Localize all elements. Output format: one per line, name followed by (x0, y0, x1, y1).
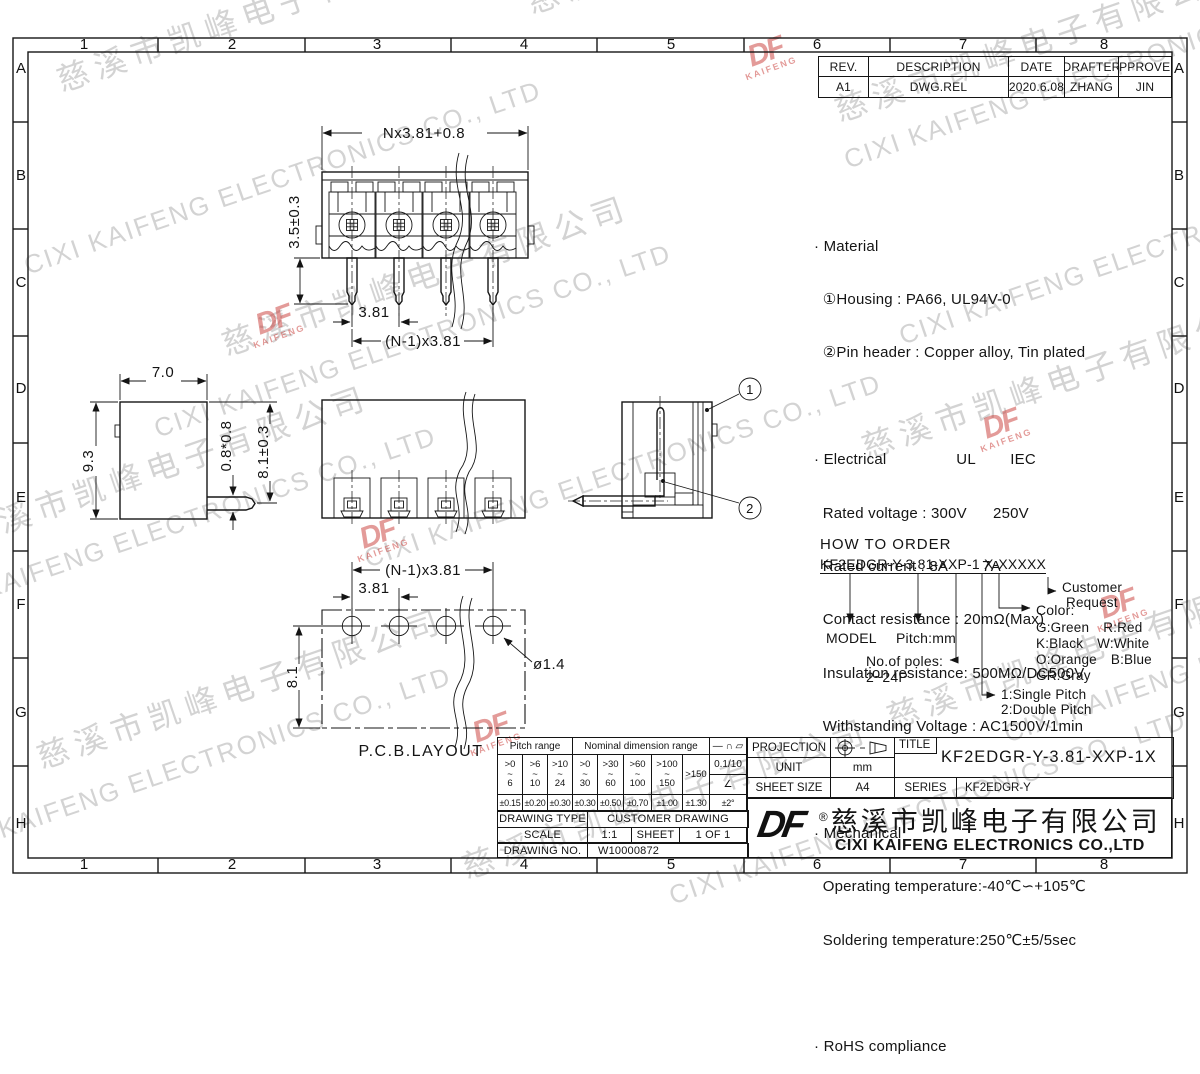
zone-col-label: 3 (366, 36, 388, 53)
note-line: ②Pin header : Copper alloy, Tin plated (814, 344, 1184, 362)
tolerance-value: ±1.00 (652, 795, 683, 811)
zone-col-label: 8 (1093, 36, 1115, 53)
note-line: · Electrical UL IEC (814, 451, 1184, 469)
drawing-no-value: W10000872 (588, 844, 748, 857)
series-value: KF2EDGR-Y (957, 778, 1173, 798)
note-line: Rated voltage : 300V 250V (814, 505, 1184, 523)
tolerance-range: >0 ~ 30 (573, 755, 598, 795)
tolerance-table: Pitch range Nominal dimension range — ∩ … (497, 737, 747, 812)
order-poles-value: 2~24P (866, 669, 908, 685)
zone-row-label: A (10, 60, 32, 77)
scale-value: 1:1 (588, 828, 632, 842)
zone-row-label: F (10, 596, 32, 613)
note-line: · RoHS compliance (814, 1038, 1184, 1056)
order-color-row: G:GreenR:Red (1036, 620, 1142, 635)
zone-col-label: 1 (73, 36, 95, 53)
order-color-option: G:Green (1036, 620, 1089, 635)
kaifeng-logo-watermark: DF KAIFENG (244, 300, 307, 351)
note-line: Soldering temperature:250℃±5/5sec (814, 932, 1184, 950)
title-block: PROJECTION TITLE KF2EDGR-Y-3.81-XXP-1X U… (747, 737, 1174, 799)
zone-col-label: 1 (73, 856, 95, 873)
zone-col-label: 5 (660, 856, 682, 873)
company-name-cn: ®慈溪市凯峰电子有限公司 (809, 800, 1171, 839)
order-color-option: R:Red (1103, 620, 1142, 635)
revision-value-description: DWG.REL (869, 77, 1009, 97)
scale-label: SCALE (498, 828, 588, 842)
sheet-label: SHEET (632, 828, 680, 842)
tolerance-angle-value: ±2° (710, 795, 746, 811)
zone-col-label: 2 (221, 856, 243, 873)
order-model-label: MODEL (826, 630, 877, 646)
sheet-size-label: SHEET SIZE (748, 778, 831, 798)
revision-value-approver: JIN (1119, 77, 1171, 97)
zone-row-label: D (10, 380, 32, 397)
order-code: KF2EDGR-Y-3.81-XXP-1 X-XXXXX (820, 556, 1046, 574)
order-color-option: K:Black (1036, 636, 1083, 651)
note-line: Operating temperature:-40℃∽+105℃ (814, 878, 1184, 896)
tolerance-range: >100 ~ 150 (652, 755, 683, 795)
order-color-option: B:Blue (1111, 652, 1152, 667)
order-pitch-label: Pitch:mm (896, 630, 956, 646)
drawing-no-label: DRAWING NO. (498, 844, 588, 857)
note-line (814, 398, 1184, 416)
tolerance-range: >6 ~ 10 (523, 755, 548, 795)
zone-col-label: 4 (513, 856, 535, 873)
kaifeng-logo-watermark: DF KAIFENG (736, 32, 799, 83)
revision-header-date: DATE (1009, 57, 1065, 77)
company-logo: DF (754, 804, 806, 847)
tolerance-symbols-header: — ∩ ▱ (710, 738, 746, 755)
order-color-option: W:White (1097, 636, 1149, 651)
series-label: SERIES (895, 778, 957, 798)
series-cell: SERIES KF2EDGR-Y (895, 778, 1173, 798)
tolerance-value: ±0.30 (548, 795, 573, 811)
note-line: ①Housing : PA66, UL94V-0 (814, 291, 1184, 309)
title-cell: TITLE KF2EDGR-Y-3.81-XXP-1X (895, 738, 1173, 778)
watermark-text: 慈溪市凯峰电子有限公司 (520, 0, 941, 23)
projection-symbol-cell (831, 738, 895, 758)
drawing-type-value: CUSTOMER DRAWING (588, 811, 748, 827)
scale-sheet-row: SCALE 1:1 SHEET 1 OF 1 (497, 827, 747, 843)
zone-col-label: 4 (513, 36, 535, 53)
order-pitch-type-1: 1:Single Pitch (1001, 687, 1086, 702)
revision-value-rev: A1 (819, 77, 869, 97)
tolerance-value: ±0.20 (523, 795, 548, 811)
zone-row-label: G (10, 704, 32, 721)
order-color-option: O:Orange (1036, 652, 1097, 667)
revision-header-approver: APPROVER (1119, 57, 1171, 77)
tolerance-range: >60 ~ 100 (624, 755, 652, 795)
tolerance-range: >30 ~ 60 (598, 755, 624, 795)
zone-col-label: 3 (366, 856, 388, 873)
unit-label: UNIT (748, 758, 831, 778)
first-angle-projection-icon (834, 739, 892, 757)
tolerance-value: ±0.50 (598, 795, 624, 811)
drawing-type-row: DRAWING TYPE CUSTOMER DRAWING (497, 810, 749, 828)
drawing-title: KF2EDGR-Y-3.81-XXP-1X (941, 748, 1157, 767)
zone-col-label: 6 (806, 36, 828, 53)
revision-header-drafter: DRAFTER (1065, 57, 1119, 77)
order-color-row: O:OrangeB:Blue (1036, 652, 1152, 667)
company-name-cn-text: 慈溪市凯峰电子有限公司 (831, 807, 1161, 837)
engineering-drawing-page: { "frame": { "cols": ["1","2","3","4","5… (0, 0, 1200, 910)
zone-row-label: H (10, 815, 32, 832)
sheet-size-value: A4 (831, 778, 895, 798)
drawing-no-row: DRAWING NO. W10000872 (497, 843, 749, 858)
zone-row-label: E (10, 489, 32, 506)
company-block: DF ®慈溪市凯峰电子有限公司 CIXI KAIFENG ELECTRONICS… (747, 797, 1172, 858)
unit-value: mm (831, 758, 895, 778)
order-pitch-type-2: 2:Double Pitch (1001, 702, 1092, 717)
revision-value-drafter: ZHANG (1065, 77, 1119, 97)
tolerance-angle-symbol: ∠ (710, 775, 746, 795)
tolerance-value: ±0.15 (498, 795, 523, 811)
watermark-text: 慈溪市凯峰电子有限公司 (50, 0, 471, 101)
revision-header-description: DESCRIPTION (869, 57, 1009, 77)
registered-mark-icon: ® (819, 810, 831, 824)
zone-col-label: 7 (952, 36, 974, 53)
note-line (814, 985, 1184, 1003)
tolerance-pitch-header: Pitch range (498, 738, 573, 755)
tolerance-value: ±0.30 (573, 795, 598, 811)
tolerance-value: ±0.70 (624, 795, 652, 811)
note-line: Withstanding Voltage : AC1500V/1min (814, 718, 1184, 736)
projection-label: PROJECTION (748, 738, 831, 758)
company-name-en: CIXI KAIFENG ELECTRONICS CO.,LTD (809, 837, 1171, 855)
zone-col-label: 5 (660, 36, 682, 53)
sheet-value: 1 OF 1 (680, 828, 746, 842)
revision-header-rev: REV. (819, 57, 869, 77)
order-color-option: GR:Gray (1036, 668, 1091, 683)
tolerance-range: >10 ~ 24 (548, 755, 573, 795)
watermark-text: CIXI KAIFENG ELECTRONICS CO., LTD (360, 368, 886, 575)
revision-table: REV. DESCRIPTION DATE DRAFTER APPROVER A… (818, 56, 1172, 98)
drawing-type-label: DRAWING TYPE (498, 811, 588, 827)
order-title: HOW TO ORDER (820, 536, 951, 553)
order-color-row: K:BlackW:White (1036, 636, 1149, 651)
revision-value-date: 2020.6.08 (1009, 77, 1065, 97)
tolerance-range: >0 ~ 6 (498, 755, 523, 795)
tolerance-nominal-header: Nominal dimension range (573, 738, 710, 755)
company-names: ®慈溪市凯峰电子有限公司 CIXI KAIFENG ELECTRONICS CO… (809, 800, 1171, 855)
note-line: · Material (814, 238, 1184, 256)
tolerance-range: >150 (683, 755, 710, 795)
order-customer-label-2: Request (1066, 595, 1118, 610)
tolerance-flatness: 0.1/10 (710, 755, 746, 775)
order-poles-label: No.of poles: (866, 653, 943, 669)
zone-col-label: 2 (221, 36, 243, 53)
title-label: TITLE (895, 738, 937, 754)
zone-row-label: B (1168, 167, 1190, 184)
zone-row-label: B (10, 167, 32, 184)
order-customer-label-1: Customer (1062, 580, 1122, 595)
zone-row-label: C (10, 274, 32, 291)
tolerance-value: ±1.30 (683, 795, 710, 811)
